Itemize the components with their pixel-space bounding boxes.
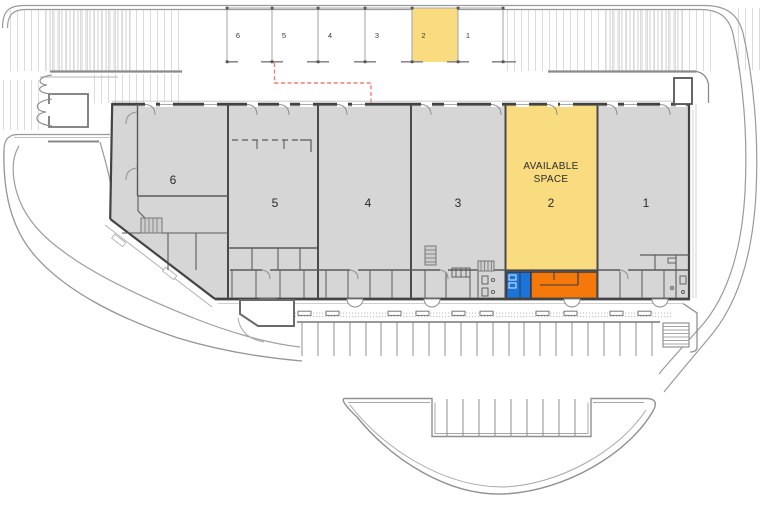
main-building: 6 5 4 3 AVAILABLE SPACE 2 1: [110, 78, 696, 307]
garage-unit-5-label: 5: [282, 31, 286, 40]
garage-unit-4-label: 4: [328, 31, 332, 40]
unit-1-label: 1: [643, 196, 650, 210]
parking-stall-lines: [302, 323, 652, 357]
unit-5-label: 5: [272, 196, 279, 210]
garage-unit-2-label: 2: [421, 31, 425, 40]
parking-island: [343, 399, 655, 495]
site-plan: 6 5 4 3 2 1: [0, 0, 768, 510]
garage-unit-3-label: 3: [375, 31, 379, 40]
unit-3-label: 3: [455, 196, 462, 210]
available-space-label-line1: AVAILABLE: [523, 161, 578, 172]
unit-6-area: [112, 104, 228, 299]
trash-enclosure: [49, 94, 88, 127]
garage-cell-walls: [227, 8, 503, 62]
unit-4-label: 4: [365, 196, 372, 210]
stairs-icon: [478, 261, 494, 271]
unit-6-label: 6: [170, 173, 177, 187]
front-parking: [238, 300, 697, 356]
garage-unit-1-label: 1: [466, 31, 470, 40]
stairs-icon: [141, 218, 162, 233]
available-space-area[interactable]: [506, 104, 597, 270]
island-outer-curb: [343, 399, 655, 495]
site-plan-drawing: 6 5 4 3 2 1: [0, 0, 768, 510]
island-stall-lines: [447, 399, 575, 436]
stair-bump: [674, 78, 692, 104]
sw-corner-pad: [240, 300, 294, 326]
garage-unit-6-label: 6: [236, 31, 240, 40]
garage-row: 6 5 4 3 2 1: [226, 7, 516, 64]
unit-2-label: 2: [548, 196, 555, 210]
blue-suite-area[interactable]: [507, 272, 532, 299]
curb-corner: [696, 72, 709, 104]
garage-unit-2-highlight[interactable]: [412, 8, 458, 62]
stairs-icon: [425, 246, 436, 265]
se-stairs-icon: [663, 323, 689, 347]
available-space-label-line2: SPACE: [534, 174, 569, 185]
